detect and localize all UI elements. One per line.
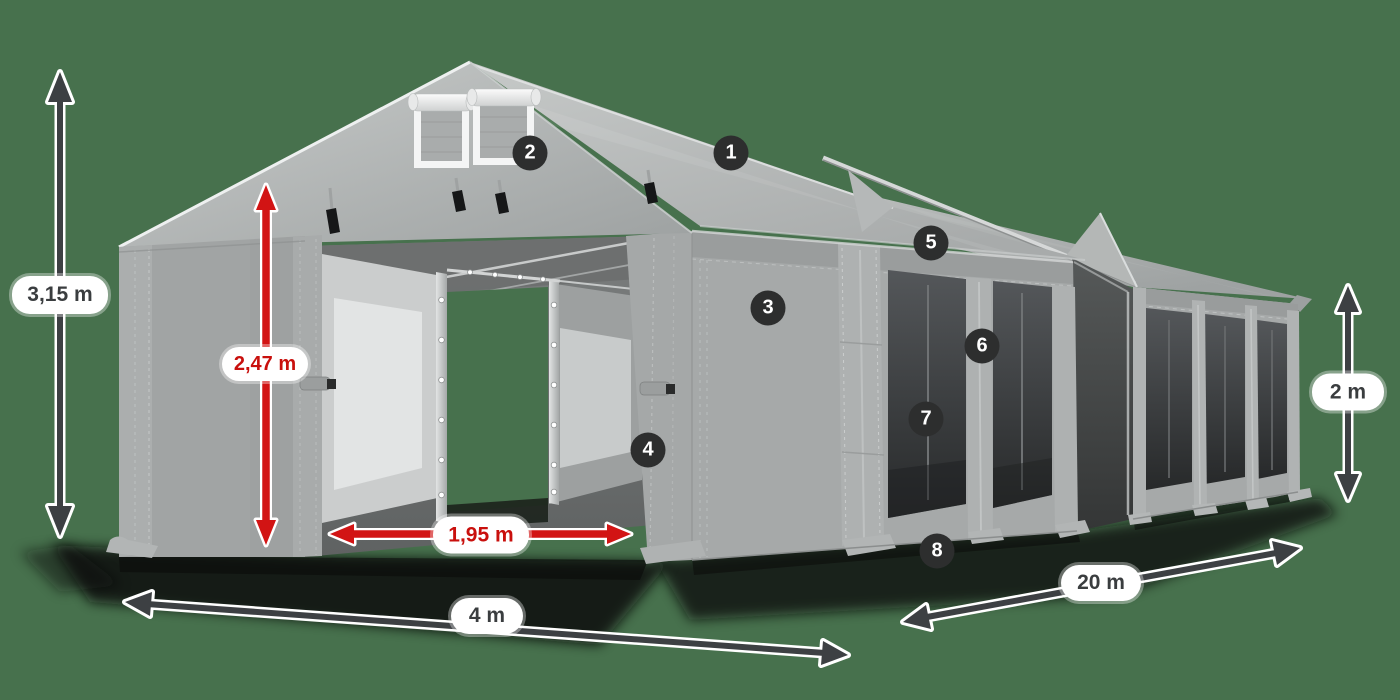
callout-badge-4[interactable]: 4 bbox=[631, 433, 666, 468]
door-handle bbox=[640, 382, 675, 395]
open-right-door bbox=[549, 280, 642, 505]
tent-illustration bbox=[0, 0, 1400, 700]
open-left-door bbox=[322, 254, 447, 523]
dimension-label-wall-height: 2 m bbox=[1312, 374, 1384, 411]
callout-badge-3[interactable]: 3 bbox=[751, 291, 786, 326]
dimension-label-total-height: 3,15 m bbox=[12, 276, 108, 314]
product-diagram: 3,15 m 2,47 m 1,95 m 4 m 20 m 2 m 1 2 3 … bbox=[0, 0, 1400, 700]
module-joint-opening bbox=[1072, 258, 1133, 531]
pole-cover bbox=[1052, 285, 1078, 533]
front-doorway-interior bbox=[305, 236, 652, 557]
front-left-wall bbox=[106, 235, 322, 558]
dimension-label-span-width: 4 m bbox=[451, 598, 523, 634]
callout-badge-1[interactable]: 1 bbox=[714, 136, 749, 171]
dimension-label-door-width: 1,95 m bbox=[433, 517, 529, 554]
callout-badge-2[interactable]: 2 bbox=[513, 136, 548, 171]
callout-badge-8[interactable]: 8 bbox=[920, 534, 955, 569]
callout-badge-5[interactable]: 5 bbox=[914, 226, 949, 261]
roll-up-vent bbox=[408, 94, 476, 169]
callout-badge-6[interactable]: 6 bbox=[965, 329, 1000, 364]
callout-badge-7[interactable]: 7 bbox=[909, 402, 944, 437]
open-rear-gap bbox=[447, 287, 548, 512]
front-module-side-wall bbox=[692, 231, 1090, 560]
rear-module-side-wall bbox=[1128, 287, 1312, 525]
dimension-label-door-height: 2,47 m bbox=[222, 347, 308, 381]
dimension-label-length: 20 m bbox=[1061, 565, 1141, 601]
